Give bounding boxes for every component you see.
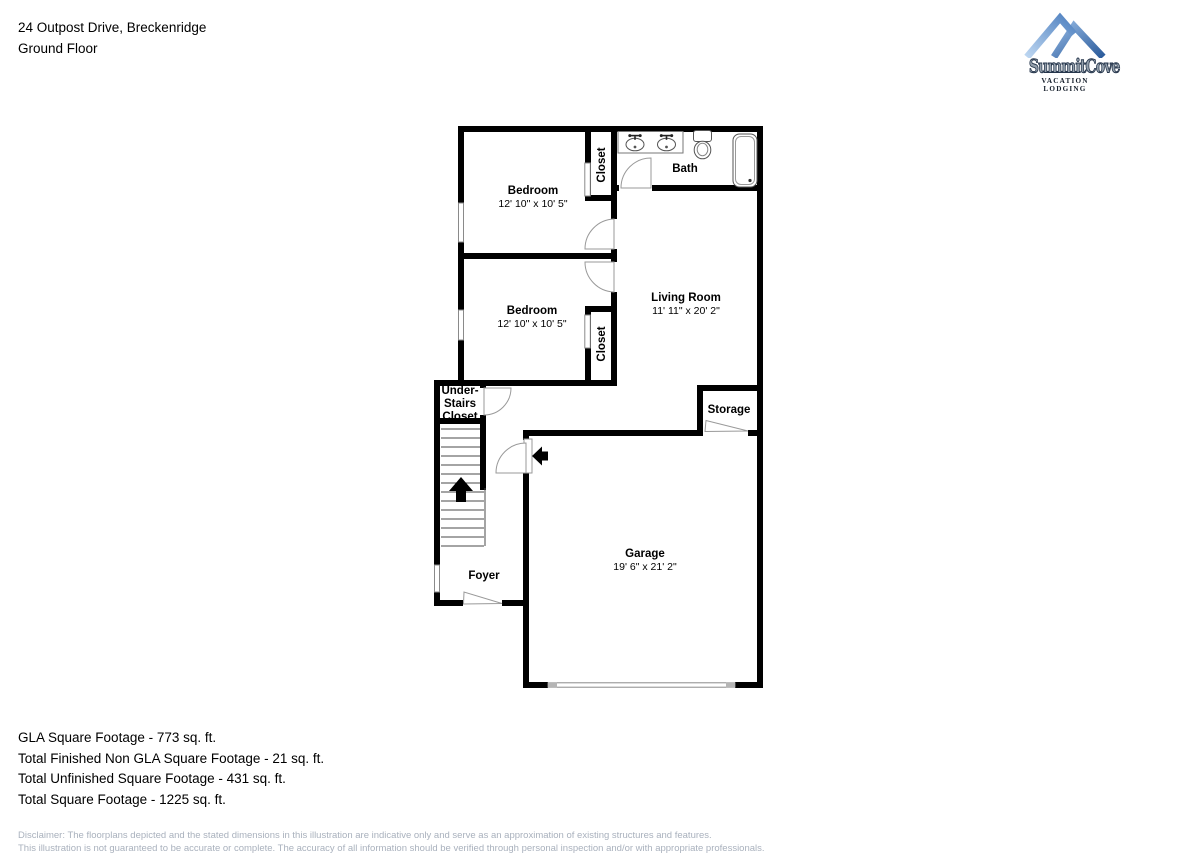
disclaimer: Disclaimer: The floorplans depicted and … [18, 830, 765, 855]
stairs-up-arrow-icon [449, 477, 473, 502]
room-label-under-stairs-1: Under- [441, 385, 478, 397]
door-openings [463, 185, 748, 689]
room-label-under-stairs-3: Closet [442, 411, 477, 423]
vanity-sinks-icon [618, 132, 683, 154]
garage-entry-door-arc [496, 443, 526, 473]
total-footage: Total Square Footage - 1225 sq. ft. [18, 790, 324, 811]
finished-non-gla-footage: Total Finished Non GLA Square Footage - … [18, 749, 324, 770]
garage-door [548, 682, 735, 687]
room-dims-bedroom-middle: 12' 10" x 10' 5" [497, 318, 566, 330]
unfinished-footage: Total Unfinished Square Footage - 431 sq… [18, 769, 324, 790]
room-label-under-stairs-2: Stairs [444, 398, 476, 410]
room-dims-bedroom-top: 12' 10" x 10' 5" [498, 198, 567, 210]
storage-door [705, 421, 748, 432]
bedroom-top-door-arc [585, 219, 614, 249]
room-dims-garage: 19' 6" x 21' 2" [613, 561, 676, 573]
room-label-bedroom-middle: Bedroom [507, 305, 557, 317]
room-label-living-room: Living Room [651, 292, 721, 304]
room-label-foyer: Foyer [468, 570, 499, 582]
room-dims-living-room: 11' 11" x 20' 2" [652, 305, 720, 317]
floorplan-drawing [0, 0, 1200, 849]
disclaimer-line-1: Disclaimer: The floorplans depicted and … [18, 830, 765, 843]
bath-door-arc [621, 158, 651, 188]
front-entry-door [464, 592, 503, 604]
room-label-bedroom-top: Bedroom [508, 185, 558, 197]
bathtub-icon [733, 134, 757, 187]
entry-direction-arrow-icon [532, 447, 548, 466]
square-footage-summary: GLA Square Footage - 773 sq. ft. Total F… [18, 728, 324, 810]
room-label-storage: Storage [708, 404, 751, 416]
gla-footage: GLA Square Footage - 773 sq. ft. [18, 728, 324, 749]
room-label-garage: Garage [625, 548, 665, 560]
under-stairs-closet-door-arc [484, 388, 511, 415]
room-label-closet-middle: Closet [596, 326, 608, 361]
toilet-icon [694, 131, 712, 159]
room-label-bath: Bath [672, 163, 698, 175]
floorplan-page: 24 Outpost Drive, Breckenridge Ground Fl… [0, 0, 1200, 849]
room-label-closet-top: Closet [596, 147, 608, 182]
bedroom-middle-door-arc [585, 262, 614, 292]
